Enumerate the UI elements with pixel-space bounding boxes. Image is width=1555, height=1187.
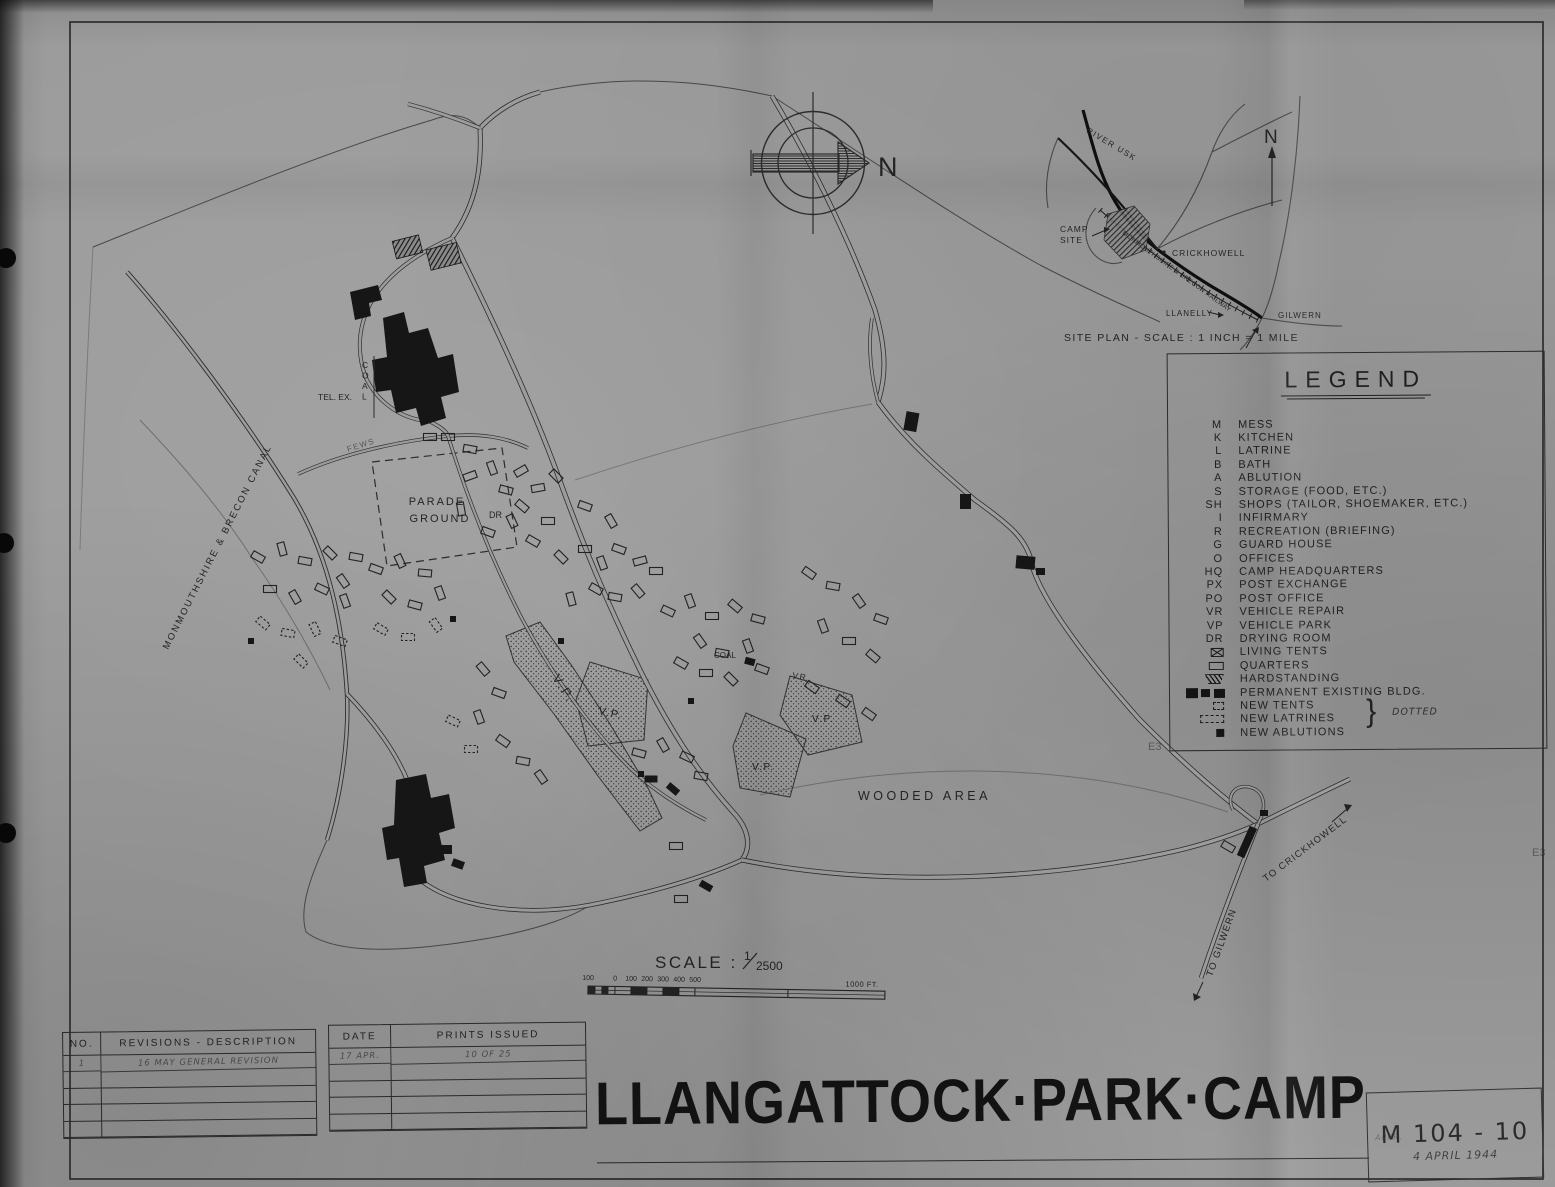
scale-tick-label: 500 <box>689 977 701 984</box>
legend-code: A <box>1168 472 1238 484</box>
new-ablutions-symbol <box>1216 729 1224 737</box>
compass-rose: N <box>751 92 899 234</box>
prints-table: DATE PRINTS ISSUED 17 APR.10 OF 25 <box>328 1022 587 1132</box>
legend-label: ABLUTION <box>1238 472 1302 484</box>
scale-tick-label: 100 <box>582 975 594 982</box>
compass-north-label: N <box>878 152 899 182</box>
vp-right-upper-label: V.P. <box>812 714 835 725</box>
drawing-number: M 104 - 10 <box>1368 1117 1543 1150</box>
legend-symbol <box>1170 674 1240 684</box>
rev-cell-no <box>64 1088 102 1105</box>
legend-code: PX <box>1169 579 1239 591</box>
legend-label: BATH <box>1238 458 1271 470</box>
drawing-title: LLANGATTOCK·PARK·CAMP <box>595 1063 1341 1139</box>
tel-ex-label: TEL. EX. <box>318 392 352 402</box>
llanelly-label: LLANELLY <box>1166 309 1213 318</box>
legend-symbol <box>1170 702 1240 710</box>
legend-label: POST OFFICE <box>1239 592 1324 605</box>
legend-title: LEGEND <box>1281 365 1431 396</box>
site-plan-inset: N RIVER USK CRICKHOWELL CAMP SITE MONMOU… <box>1046 96 1342 350</box>
crickhowell-label: CRICKHOWELL <box>1172 248 1245 258</box>
legend-symbol <box>1170 715 1240 723</box>
legend-label: POST EXCHANGE <box>1239 578 1348 591</box>
legend-code: SH <box>1169 499 1239 511</box>
legend-code: VP <box>1169 619 1239 631</box>
living-tents-symbol <box>1211 648 1224 657</box>
legend-label: VEHICLE PARK <box>1239 619 1332 632</box>
legend-label: NEW TENTS <box>1240 699 1315 712</box>
col-header-date: DATE <box>329 1025 391 1049</box>
legend-label: NEW LATRINES <box>1240 712 1335 725</box>
scale-denominator: 2500 <box>756 959 783 973</box>
parade-ground-label-2: GROUND <box>410 513 471 525</box>
pencil-mark-legend: E3 <box>1148 741 1161 753</box>
site-plan-caption: SITE PLAN - SCALE : 1 INCH = 1 MILE <box>1064 332 1299 344</box>
legend-symbol <box>1170 688 1240 696</box>
rev-cell-no <box>64 1121 102 1138</box>
scale-tick-label: 100 <box>625 976 637 983</box>
legend-items: MMESSKKITCHENLLATRINEBBATHAABLUTIONSSTOR… <box>1168 416 1546 740</box>
rev-cell-prints <box>392 1111 586 1130</box>
gilwern-label: GILWERN <box>1278 311 1322 320</box>
legend-code: VR <box>1169 606 1239 618</box>
rev-cell-no: 1 <box>63 1055 101 1072</box>
legend-label: KITCHEN <box>1238 432 1294 444</box>
legend-label: VEHICLE REPAIR <box>1239 605 1345 618</box>
dr-label: DR <box>489 510 502 520</box>
hardstanding-symbol <box>1205 674 1224 684</box>
legend-code: B <box>1168 459 1238 471</box>
drawing-date: 4 APRIL 1944 <box>1368 1147 1542 1165</box>
vp-right-lower-label: V.P. <box>752 762 775 773</box>
scan-edge-top-right <box>1244 0 1555 10</box>
legend-label: HARDSTANDING <box>1240 672 1340 685</box>
rev-cell-date <box>330 1081 392 1098</box>
legend-label: SHOPS (TAILOR, SHOEMAKER, ETC.) <box>1239 497 1469 511</box>
legend-symbol <box>1170 648 1240 657</box>
legend-row-new-ablutions: NEW ABLUTIONS <box>1170 724 1546 740</box>
legend-label: MESS <box>1238 418 1274 430</box>
scale-tick-label: 400 <box>673 976 685 983</box>
to-gilwern-label: TO GILWERN <box>1193 907 1239 1001</box>
rev-cell-date: 17 APR. <box>329 1048 391 1066</box>
legend-code: S <box>1169 485 1239 497</box>
legend-dotted-brace: } <box>1366 694 1376 730</box>
legend-code: L <box>1168 445 1238 457</box>
camp-site-label-1: CAMP <box>1060 224 1089 234</box>
legend-code: R <box>1169 526 1239 538</box>
parade-ground-label-1: PARADE <box>409 496 465 508</box>
coal-label: COAL <box>714 651 736 660</box>
legend-code: G <box>1169 539 1239 551</box>
canal-label: MONMOUTHSHIRE & BRECON CANAL <box>161 443 275 652</box>
pencil-mark-edge: E3 <box>1532 847 1545 859</box>
rev-cell-date <box>329 1064 391 1081</box>
legend-label: CAMP HEADQUARTERS <box>1239 565 1384 578</box>
legend-symbol <box>1170 728 1240 736</box>
new-tents-symbol <box>1213 702 1224 710</box>
roads <box>127 92 1350 978</box>
inset-north-arrow: N <box>1264 127 1278 206</box>
drawing-number-box: APPR. M 104 - 10 4 APRIL 1944 <box>1366 1088 1544 1183</box>
svg-text:N: N <box>1264 127 1278 148</box>
legend-label: RECREATION (BRIEFING) <box>1239 525 1396 538</box>
vehicle-park-areas <box>506 622 862 831</box>
rev-cell-no <box>64 1072 102 1089</box>
legend-code: O <box>1169 552 1239 564</box>
quarters-symbol <box>1209 662 1224 670</box>
legend-code: HQ <box>1169 566 1239 578</box>
scale-tick-label: 300 <box>657 976 669 983</box>
rev-cell-date <box>330 1114 392 1131</box>
scale-tick-label: 200 <box>641 976 653 983</box>
legend-dotted-note: DOTTED <box>1392 706 1438 717</box>
legend-label: LATRINE <box>1238 445 1291 457</box>
scale-end-label: 1000 FT. <box>845 979 878 989</box>
legend-label: DRYING ROOM <box>1240 632 1332 645</box>
legend-code: M <box>1168 419 1238 431</box>
railway-label: MONMOUTHSHIRE & BRECON RAILWAY <box>1121 230 1233 314</box>
legend-label: QUARTERS <box>1240 659 1310 671</box>
legend-label: NEW ABLUTIONS <box>1240 726 1345 739</box>
legend-code: DR <box>1170 633 1240 645</box>
rev-cell-no <box>64 1105 102 1122</box>
legend-label: STORAGE (FOOD, ETC.) <box>1239 484 1388 497</box>
scale-prefix: SCALE : <box>655 953 738 972</box>
legend-label: GUARD HOUSE <box>1239 538 1333 551</box>
legend-label: PERMANENT EXISTING BLDG. <box>1240 685 1426 698</box>
rev-cell-date <box>330 1097 392 1114</box>
legend-code: K <box>1168 432 1238 444</box>
scan-edge-left <box>0 0 24 1187</box>
legend-code: I <box>1169 512 1239 524</box>
col-header-no: NO. <box>63 1033 101 1056</box>
legend-code: PO <box>1169 593 1239 605</box>
scale-tick-label: 0 <box>613 975 617 982</box>
revisions-table: NO. REVISIONS - DESCRIPTION 116 MAY GENE… <box>62 1029 317 1139</box>
legend-symbol <box>1170 662 1240 670</box>
scanned-drawing-sheet: N N RIVER USK <box>0 0 1555 1187</box>
col-header-prints: PRINTS ISSUED <box>391 1023 585 1048</box>
wooded-area-label: WOODED AREA <box>858 789 991 803</box>
rev-cell-description <box>102 1118 316 1137</box>
legend-label: OFFICES <box>1239 552 1294 564</box>
permanent-bldg-symbol <box>1201 689 1210 697</box>
legend-box: LEGEND MMESSKKITCHENLLATRINEBBATHAABLUTI… <box>1167 351 1548 752</box>
legend-label: LIVING TENTS <box>1240 646 1328 659</box>
scale-bar: SCALE : 1 2500 1000 FT. 1000100200300400… <box>582 949 885 999</box>
svg-text:TO CRICKHOWELL: TO CRICKHOWELL <box>1261 814 1349 884</box>
legend-label: INFIRMARY <box>1239 512 1309 524</box>
camp-site-label-2: SITE <box>1060 235 1083 245</box>
new-latrines-symbol <box>1200 715 1224 723</box>
scan-edge-top <box>0 0 933 13</box>
